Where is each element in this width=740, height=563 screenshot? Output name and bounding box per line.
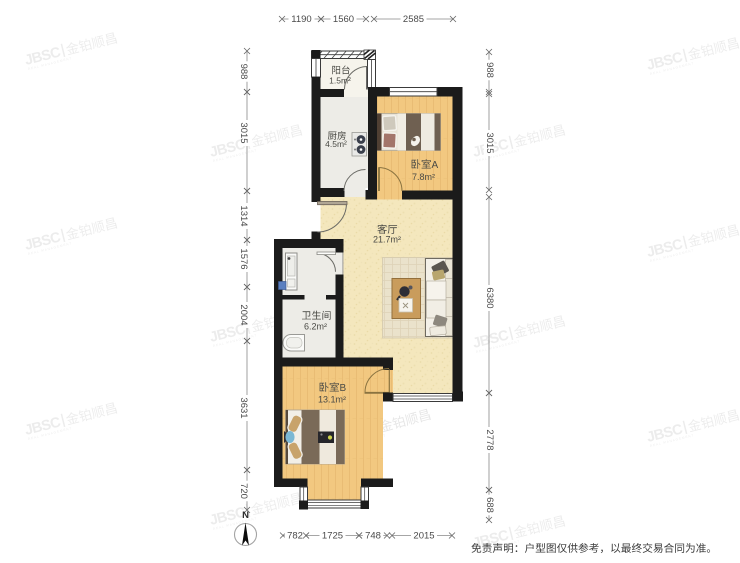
svg-text:3015: 3015 [484, 132, 495, 153]
svg-text:1.5m²: 1.5m² [329, 76, 351, 86]
svg-text:2585: 2585 [403, 14, 424, 25]
svg-text:1560: 1560 [333, 14, 354, 25]
svg-text:3631: 3631 [238, 397, 249, 418]
svg-text:N: N [242, 510, 249, 521]
svg-text:688: 688 [484, 497, 495, 513]
svg-text:6.2m²: 6.2m² [304, 322, 327, 332]
svg-text:748: 748 [365, 531, 381, 542]
svg-text:A: A [432, 160, 439, 171]
svg-text:4.5m²: 4.5m² [325, 139, 347, 149]
svg-text:1190: 1190 [291, 14, 311, 25]
svg-text:1576: 1576 [238, 248, 249, 269]
svg-text:988: 988 [238, 64, 249, 80]
svg-text:782: 782 [287, 531, 303, 542]
svg-text:13.1m²: 13.1m² [318, 395, 346, 405]
svg-text:3015: 3015 [238, 122, 249, 143]
svg-text:720: 720 [238, 483, 249, 499]
svg-text:2004: 2004 [238, 304, 249, 325]
svg-text:2778: 2778 [484, 429, 495, 450]
svg-text:21.7m²: 21.7m² [373, 235, 401, 245]
svg-text:B: B [340, 383, 347, 394]
svg-text:1314: 1314 [238, 205, 249, 226]
svg-text:7.8m²: 7.8m² [412, 172, 435, 182]
svg-text:2015: 2015 [413, 531, 434, 542]
svg-text:1725: 1725 [322, 531, 343, 542]
svg-text:988: 988 [484, 62, 495, 78]
svg-text:6380: 6380 [484, 287, 495, 308]
